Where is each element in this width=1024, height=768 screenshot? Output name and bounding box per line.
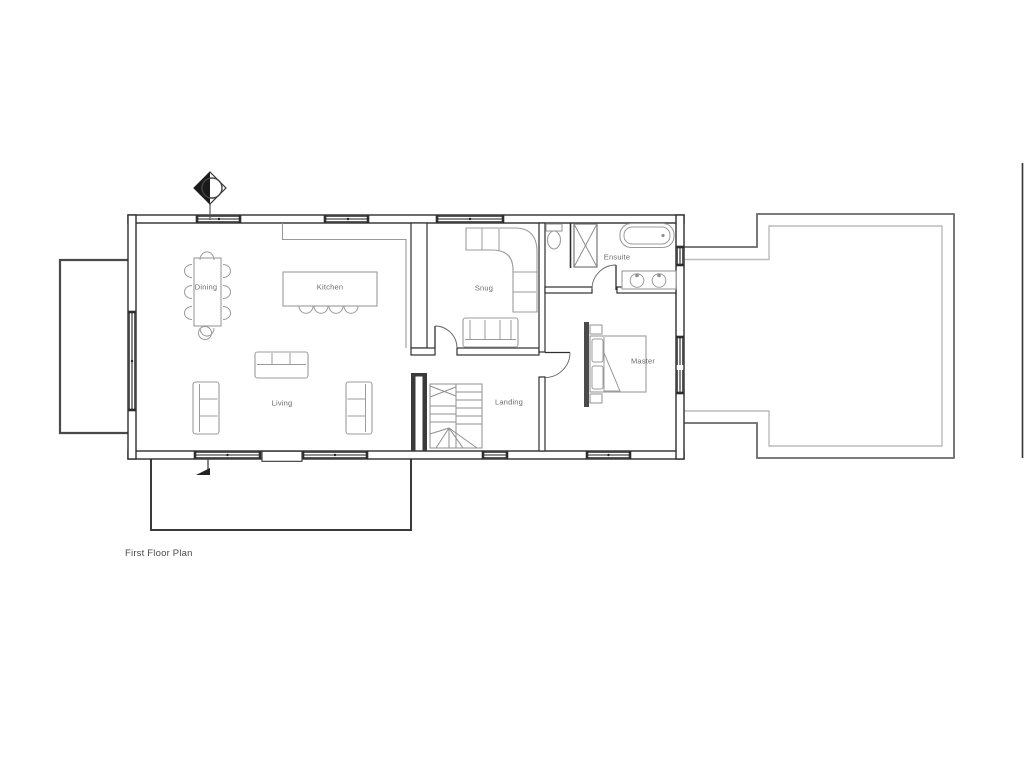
shower	[574, 224, 597, 267]
window-dining	[196, 215, 242, 222]
sofa-living-top	[255, 352, 308, 378]
stove	[199, 327, 212, 340]
room-label-snug: Snug	[475, 284, 493, 293]
vanity-sinks	[622, 271, 676, 289]
room-label-ensuite: Ensuite	[604, 253, 630, 262]
bar-stools	[299, 306, 358, 313]
window-ensuite-east	[676, 246, 683, 267]
winder-stairs	[430, 384, 482, 448]
snug-door	[435, 326, 457, 348]
garage-outline	[684, 214, 954, 458]
plan-title: First Floor Plan	[125, 548, 193, 559]
window-snug	[436, 215, 505, 222]
window-master-east	[676, 336, 683, 395]
north-arrow-icon	[194, 172, 226, 220]
floor-plan-canvas: Dining Kitchen Snug Ensuite Living Landi…	[0, 0, 1024, 768]
dining-table	[194, 258, 221, 326]
room-label-master: Master	[631, 357, 655, 366]
sofa-living-right	[346, 382, 372, 434]
ensuite-door	[592, 265, 616, 290]
corner-sofa	[466, 228, 537, 312]
room-label-dining: Dining	[195, 283, 217, 292]
sofa-snug	[463, 318, 518, 347]
floor-plan-drawing	[0, 0, 1024, 768]
room-label-kitchen: Kitchen	[317, 283, 343, 292]
downpipe-symbol	[196, 459, 210, 475]
window-living-right	[302, 451, 369, 458]
master-door	[545, 353, 570, 378]
sofa-living-left	[193, 382, 219, 434]
terrace-door	[262, 451, 302, 461]
window-landing	[482, 451, 509, 458]
window-living-west	[128, 311, 135, 412]
room-label-living: Living	[272, 399, 293, 408]
window-master-south	[586, 451, 632, 458]
balcony-outline	[60, 260, 133, 433]
window-living-left	[194, 451, 262, 458]
toilet	[546, 224, 562, 249]
stair-wall	[411, 373, 427, 451]
window-kitchen	[324, 215, 370, 222]
room-label-landing: Landing	[495, 398, 523, 407]
terrace-outline	[151, 459, 411, 530]
bath	[620, 224, 674, 248]
